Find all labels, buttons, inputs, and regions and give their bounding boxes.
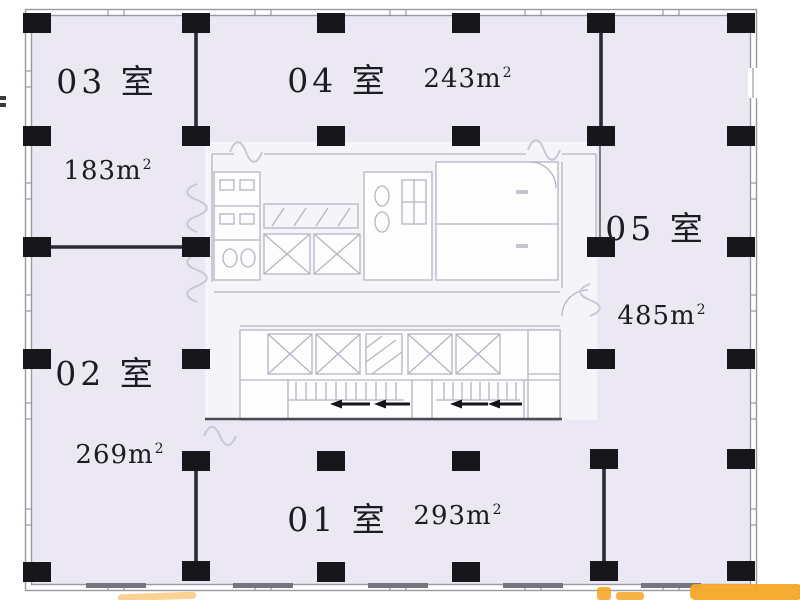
watermark-fragment [690, 584, 800, 600]
watermark-fragment [597, 587, 611, 600]
room-02-label: 02 室 [55, 347, 156, 395]
room-05-label: 05 室 [605, 202, 706, 250]
room-05-area: 485m2 [617, 301, 706, 331]
room-01-area: 293m2 [413, 501, 502, 531]
watermark-fragment [616, 592, 644, 600]
room-03-area: 183m2 [63, 156, 152, 186]
room-04-area: 243m2 [423, 64, 512, 94]
floorplan-page: 03 室 183m2 04 室 243m2 05 室 485m2 02 室 26… [0, 0, 800, 600]
room-04-label: 04 室 [287, 54, 388, 102]
room-02-area: 269m2 [75, 440, 164, 470]
room-03-label: 03 室 [56, 55, 157, 103]
room-01-label: 01 室 [287, 493, 388, 541]
